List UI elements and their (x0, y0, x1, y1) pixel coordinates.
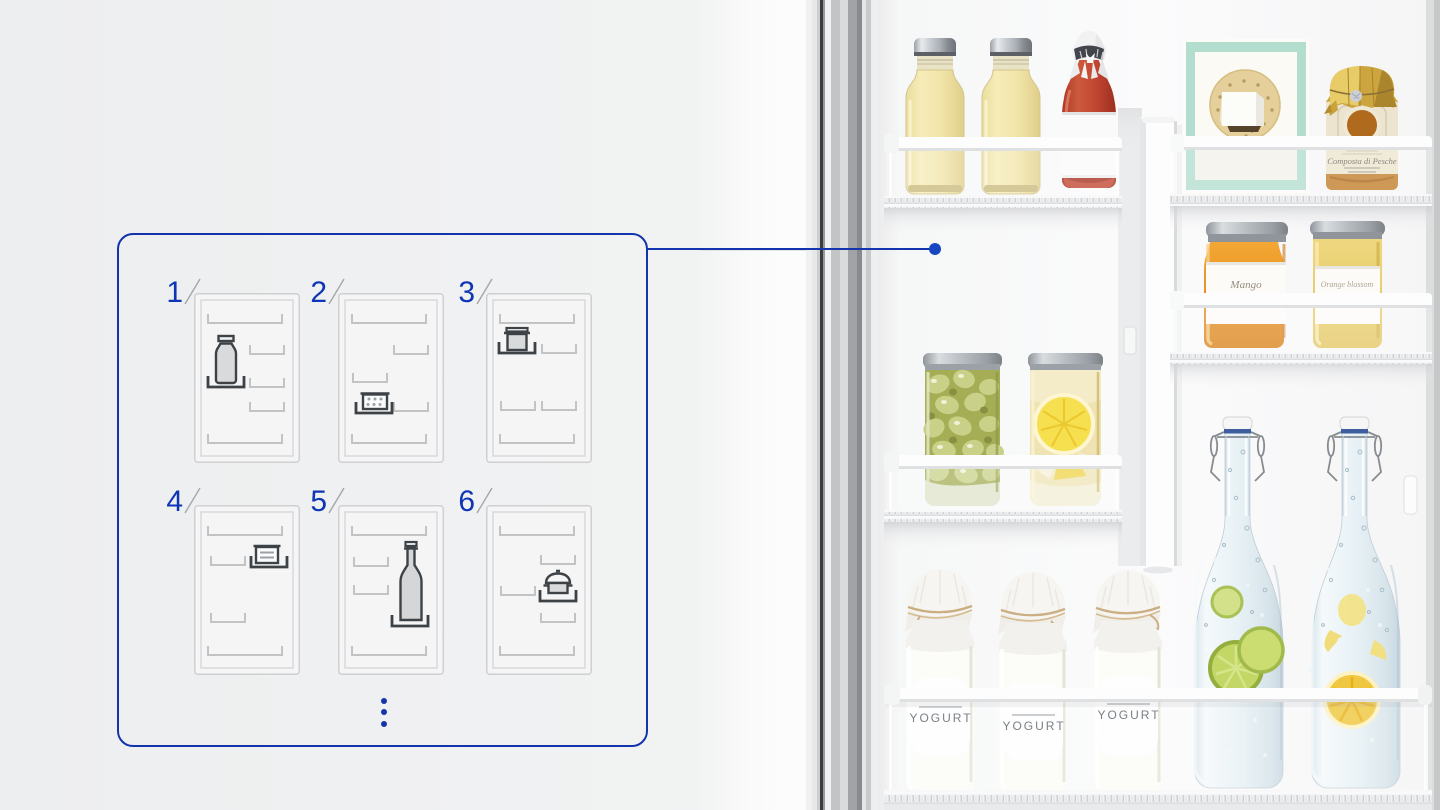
svg-text:2: 2 (310, 276, 327, 309)
svg-text:1: 1 (166, 276, 183, 309)
svg-text:6: 6 (458, 485, 475, 518)
svg-text:3: 3 (458, 276, 475, 309)
svg-text:Orange blossom: Orange blossom (1321, 280, 1374, 289)
svg-text:Mango: Mango (1229, 279, 1262, 291)
svg-text:4: 4 (166, 485, 183, 518)
svg-text:5: 5 (310, 485, 327, 518)
